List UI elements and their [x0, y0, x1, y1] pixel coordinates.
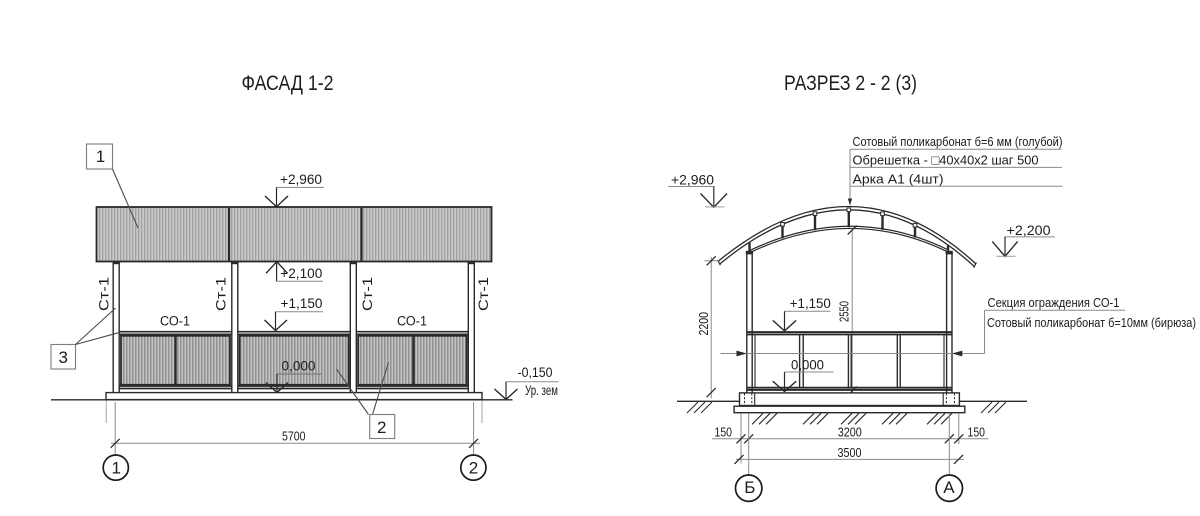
svg-text:Сотовый поликарбонат б=10мм (б: Сотовый поликарбонат б=10мм (бирюза) [987, 315, 1196, 330]
svg-text:СО-1: СО-1 [160, 314, 190, 329]
svg-text:Б: Б [744, 478, 755, 497]
svg-text:+2,200: +2,200 [1007, 223, 1051, 238]
svg-text:0,000: 0,000 [791, 358, 824, 373]
svg-text:+2,960: +2,960 [280, 172, 322, 187]
svg-text:РАЗРЕЗ 2 - 2 (3): РАЗРЕЗ 2 - 2 (3) [784, 72, 917, 95]
svg-text:3200: 3200 [838, 424, 862, 439]
svg-text:2: 2 [469, 458, 478, 477]
svg-text:Арка А1 (4шт): Арка А1 (4шт) [853, 171, 944, 186]
svg-text:5700: 5700 [282, 429, 306, 444]
svg-text:1: 1 [112, 458, 121, 477]
svg-text:3: 3 [59, 348, 68, 367]
svg-text:СО-1: СО-1 [397, 314, 427, 329]
svg-text:+1,150: +1,150 [281, 296, 323, 311]
svg-text:-0,150: -0,150 [518, 365, 553, 380]
svg-text:2550: 2550 [837, 301, 852, 322]
svg-text:1: 1 [96, 147, 105, 166]
svg-text:Ст-1: Ст-1 [213, 277, 229, 311]
svg-text:А: А [943, 478, 955, 497]
svg-text:Ст-1: Ст-1 [359, 277, 375, 311]
svg-text:Сотовый поликарбонат б=6 мм (г: Сотовый поликарбонат б=6 мм (голубой) [853, 134, 1063, 149]
svg-text:Ст-1: Ст-1 [96, 277, 112, 311]
svg-text:3500: 3500 [838, 445, 862, 460]
svg-text:Секция ограждения СО-1: Секция ограждения СО-1 [988, 295, 1120, 310]
svg-text:+1,150: +1,150 [790, 296, 831, 311]
svg-text:2200: 2200 [696, 312, 711, 336]
svg-text:0,000: 0,000 [282, 358, 316, 373]
svg-text:Ур. зем: Ур. зем [525, 383, 558, 398]
svg-text:Обрешетка - □40х40х2 шаг 500: Обрешетка - □40х40х2 шаг 500 [853, 153, 1039, 168]
svg-text:ФАСАД 1-2: ФАСАД 1-2 [242, 72, 334, 95]
svg-text:150: 150 [715, 424, 733, 439]
svg-text:150: 150 [968, 424, 986, 439]
svg-text:+2,100: +2,100 [280, 266, 322, 281]
svg-text:2: 2 [377, 418, 386, 437]
svg-text:Ст-1: Ст-1 [475, 277, 491, 311]
svg-text:+2,960: +2,960 [671, 173, 714, 188]
